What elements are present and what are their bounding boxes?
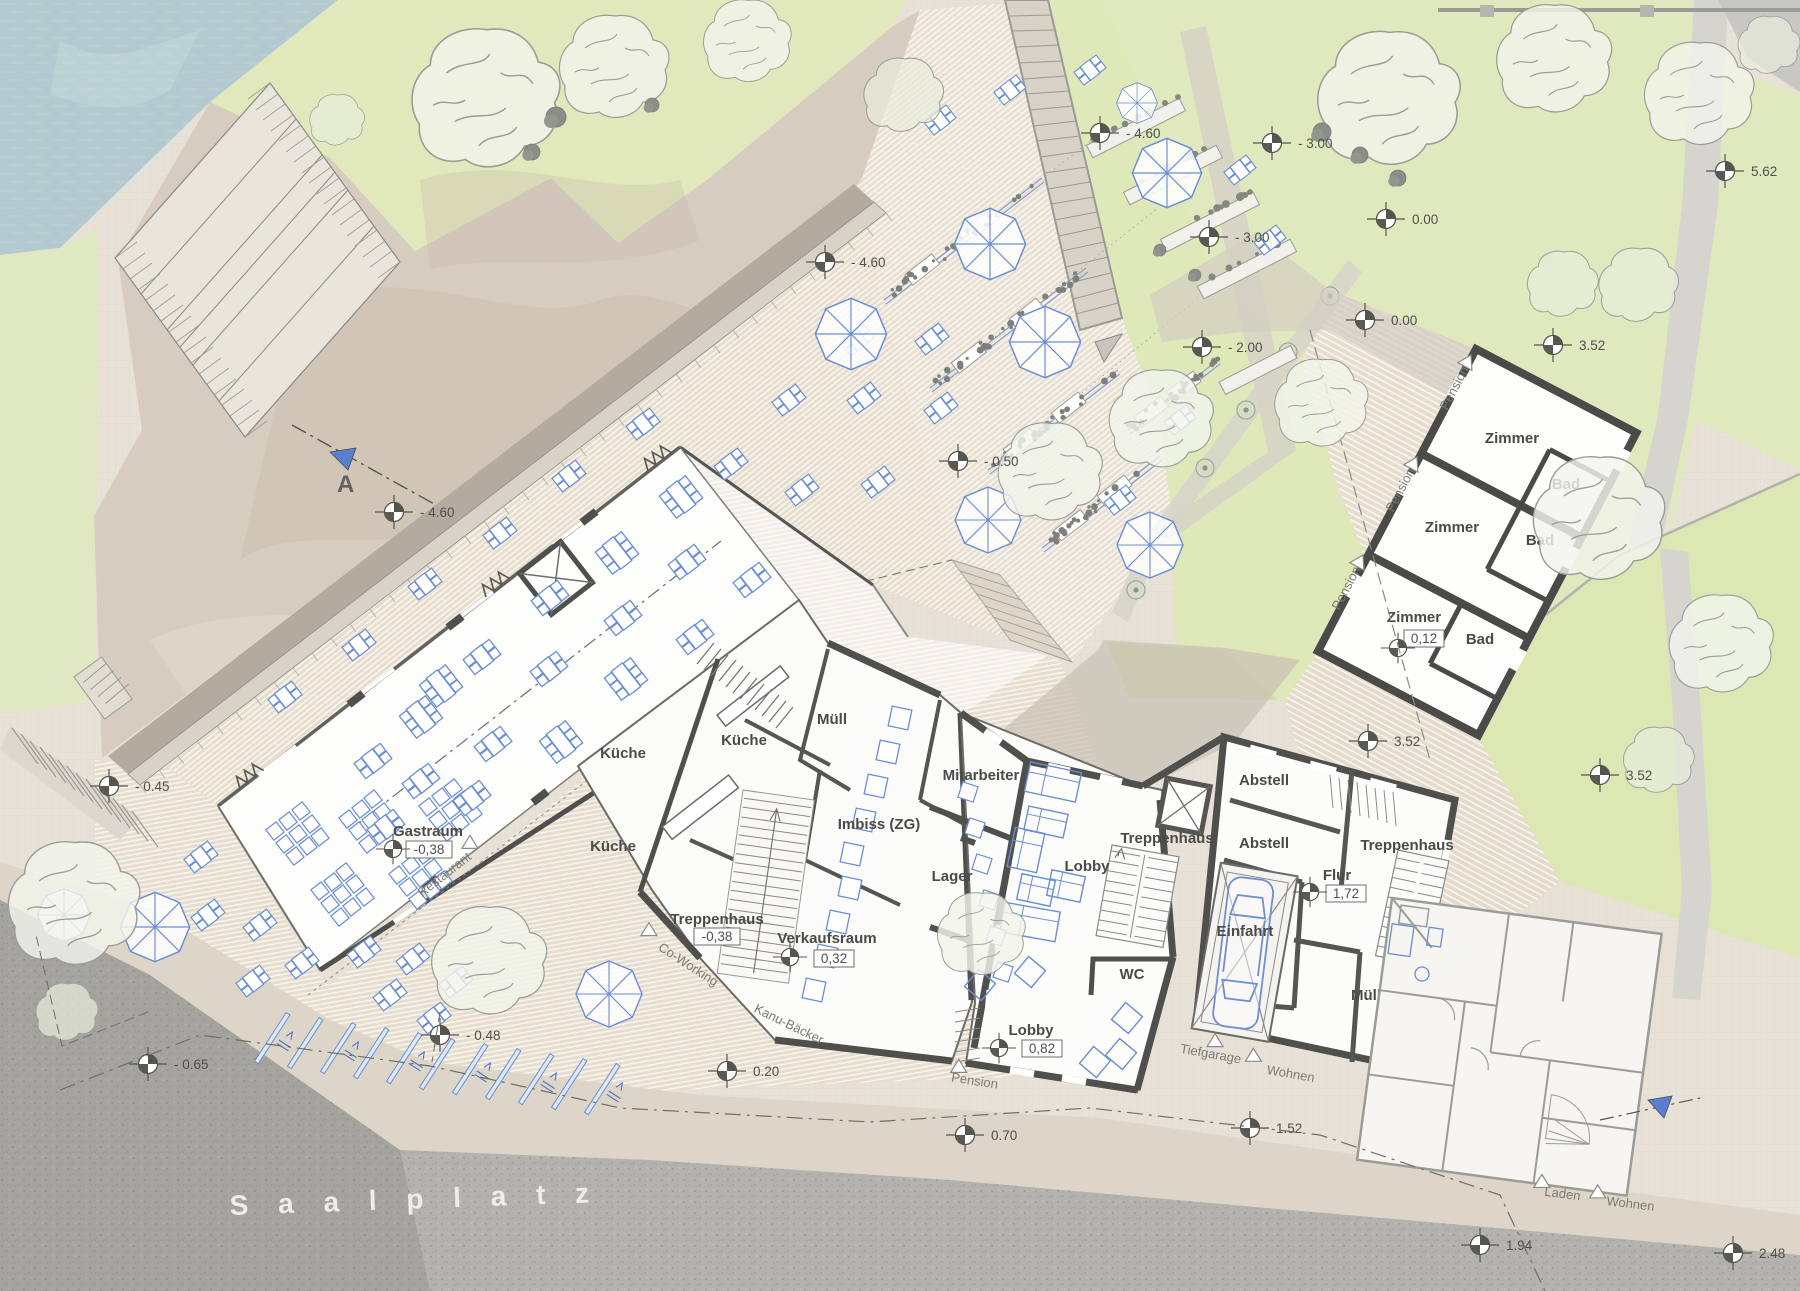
svg-text:WC: WC <box>1120 966 1145 983</box>
svg-text:Zimmer: Zimmer <box>1485 430 1539 447</box>
svg-text:3.52: 3.52 <box>1394 734 1420 749</box>
svg-text:Lobby: Lobby <box>1065 858 1111 875</box>
svg-text:- 4.60: - 4.60 <box>851 255 886 270</box>
svg-text:3.52: 3.52 <box>1579 338 1605 353</box>
svg-text:- 2.00: - 2.00 <box>1228 340 1263 355</box>
svg-text:- 3.00: - 3.00 <box>1298 136 1333 151</box>
svg-text:- 0.65: - 0.65 <box>174 1057 209 1072</box>
svg-text:1.94: 1.94 <box>1506 1238 1533 1253</box>
svg-text:Küche: Küche <box>590 838 636 855</box>
svg-text:Treppenhaus: Treppenhaus <box>1120 830 1213 847</box>
svg-text:A: A <box>337 471 354 498</box>
svg-text:0,82: 0,82 <box>1029 1041 1055 1056</box>
svg-text:Müll: Müll <box>817 711 847 728</box>
svg-text:Treppenhaus: Treppenhaus <box>1360 837 1453 854</box>
svg-text:Küche: Küche <box>721 732 767 749</box>
svg-text:-0,38: -0,38 <box>414 842 445 857</box>
svg-text:- 4.60: - 4.60 <box>1126 126 1161 141</box>
svg-text:Mitarbeiter: Mitarbeiter <box>943 767 1020 784</box>
svg-text:0.00: 0.00 <box>1412 212 1438 227</box>
svg-text:1,72: 1,72 <box>1333 886 1359 901</box>
svg-text:- 4.60: - 4.60 <box>420 505 455 520</box>
svg-text:0.20: 0.20 <box>753 1064 779 1079</box>
svg-text:- 0.48: - 0.48 <box>466 1028 501 1043</box>
svg-text:0,12: 0,12 <box>1411 631 1437 646</box>
svg-text:0.00: 0.00 <box>1391 313 1417 328</box>
svg-text:Zimmer: Zimmer <box>1425 519 1479 536</box>
svg-text:Zimmer: Zimmer <box>1387 609 1441 626</box>
svg-text:-0,38: -0,38 <box>702 929 733 944</box>
svg-text:Treppenhaus: Treppenhaus <box>670 911 763 928</box>
svg-text:Einfahrt: Einfahrt <box>1217 923 1274 940</box>
svg-text:0,32: 0,32 <box>821 951 847 966</box>
svg-text:3.52: 3.52 <box>1626 768 1652 783</box>
svg-text:- 0.50: - 0.50 <box>984 454 1019 469</box>
svg-text:Küche: Küche <box>600 745 646 762</box>
svg-text:0.70: 0.70 <box>991 1128 1017 1143</box>
svg-text:- 3.00: - 3.00 <box>1235 230 1270 245</box>
svg-text:- 0.45: - 0.45 <box>135 779 170 794</box>
svg-text:Flur: Flur <box>1323 867 1351 884</box>
svg-text:5.62: 5.62 <box>1751 164 1777 179</box>
svg-text:Imbiss (ZG): Imbiss (ZG) <box>838 816 921 833</box>
svg-text:Gastraum: Gastraum <box>393 823 463 840</box>
svg-text:Bad: Bad <box>1466 631 1494 648</box>
svg-text:2.48: 2.48 <box>1759 1246 1785 1261</box>
svg-text:Lobby: Lobby <box>1009 1022 1055 1039</box>
svg-text:Müll: Müll <box>1351 987 1381 1004</box>
svg-text:Abstell: Abstell <box>1239 835 1289 852</box>
svg-text:Abstell: Abstell <box>1239 772 1289 789</box>
svg-text:Verkaufsraum: Verkaufsraum <box>777 930 876 947</box>
svg-text:1.52: 1.52 <box>1276 1121 1302 1136</box>
svg-text:Lager: Lager <box>932 868 973 885</box>
